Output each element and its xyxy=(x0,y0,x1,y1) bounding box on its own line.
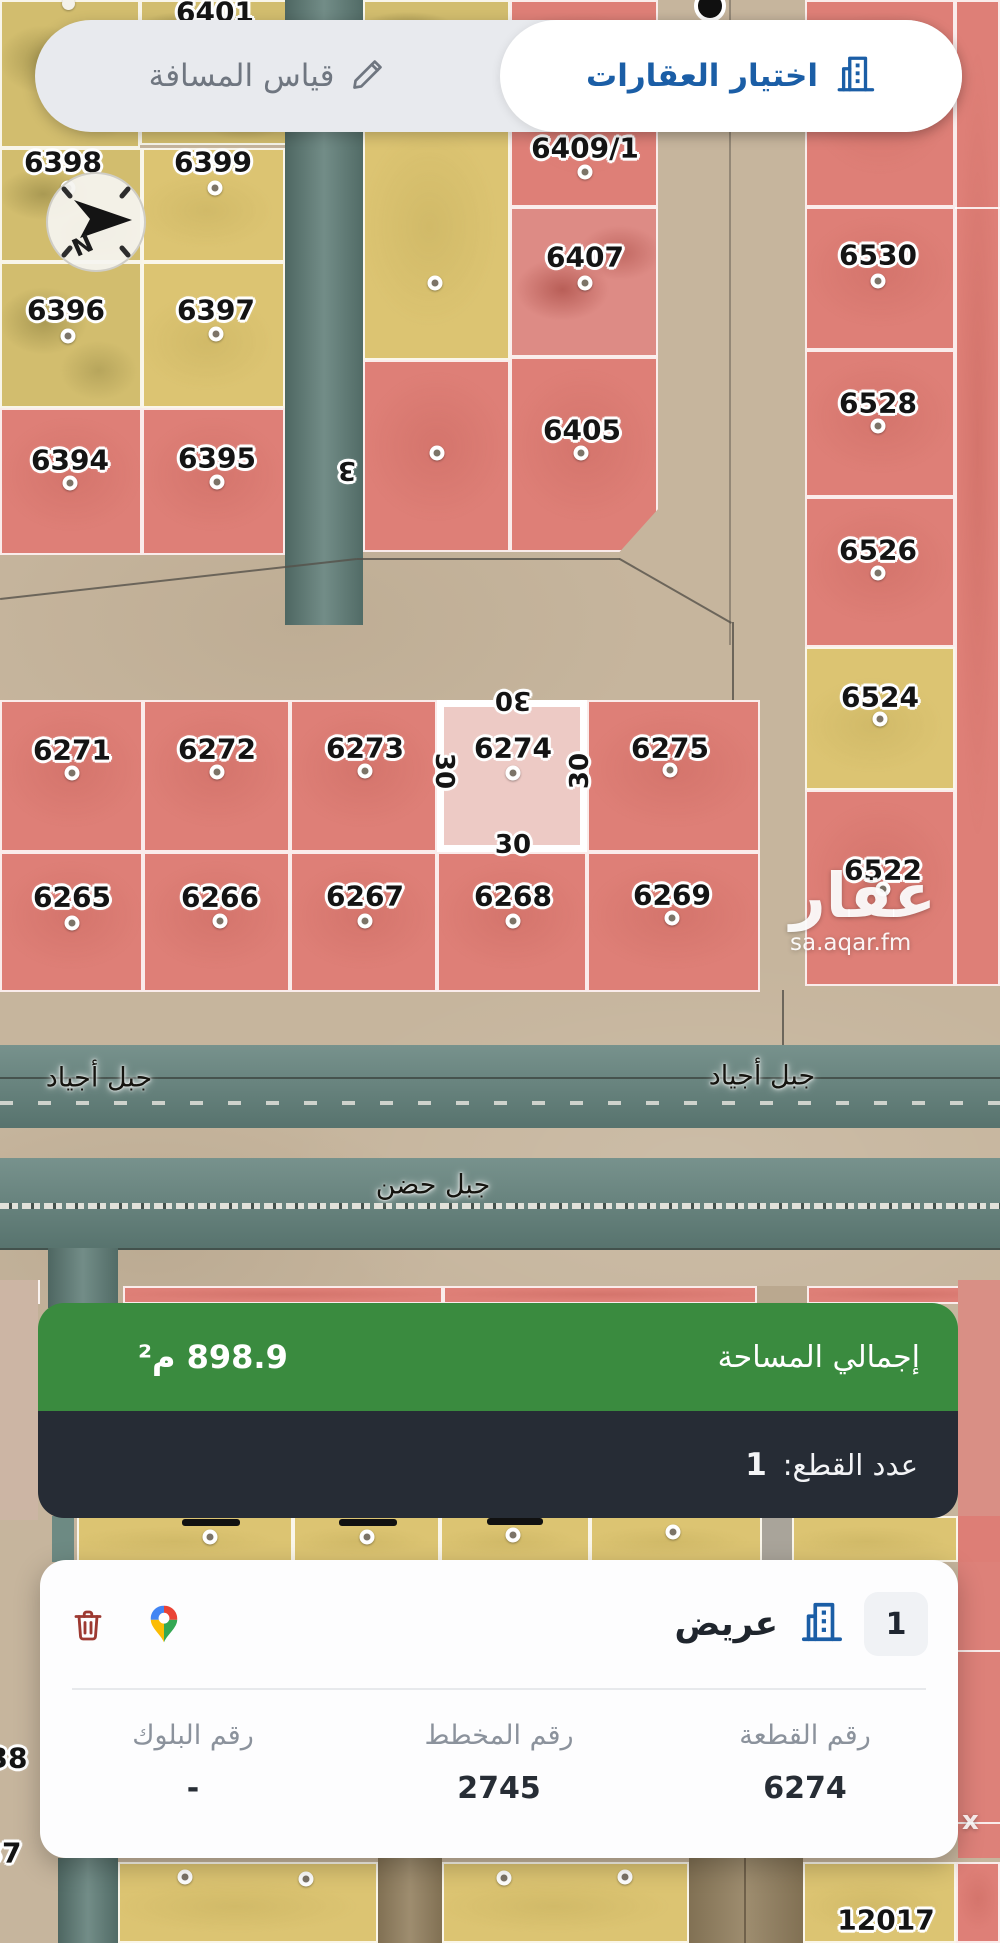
parcel-label: 6267 xyxy=(326,880,404,913)
lane-dashes xyxy=(0,1203,1000,1209)
total-area-bar: إجمالي المساحة 898.9 م² xyxy=(38,1303,958,1411)
parcel-label: 6528 xyxy=(839,387,917,420)
boundary-line xyxy=(955,207,1000,209)
parcel-dot xyxy=(178,1870,193,1885)
field-label: رقم البلوك xyxy=(40,1720,346,1751)
parcel-label: 6396 xyxy=(27,294,105,327)
watermark-domain: sa.aqar.fm xyxy=(790,930,990,956)
parcel-dot xyxy=(428,276,443,291)
parcel-label: 12017 xyxy=(837,1904,934,1937)
parcel-dot xyxy=(873,712,888,727)
parcel-dot xyxy=(358,764,373,779)
road-sliver xyxy=(762,1516,792,1562)
open-google-maps-button[interactable] xyxy=(144,1604,184,1644)
parcel-column[interactable] xyxy=(955,0,1000,986)
road-sliver xyxy=(52,1516,74,1562)
select-properties-label: اختيار العقارات xyxy=(586,58,818,94)
watermark: عقار sa.aqar.fm xyxy=(790,868,990,956)
parcel[interactable] xyxy=(118,1862,378,1943)
building-icon xyxy=(834,53,876,99)
parcel-dot xyxy=(497,1871,512,1886)
selected-parcel-label: 6274 xyxy=(474,732,552,765)
mode-toolbar: قياس المسافة اختيار العقارات xyxy=(35,20,962,132)
street-label: جبل أجياد xyxy=(709,1061,815,1092)
parcel-dot xyxy=(578,165,593,180)
road-line xyxy=(0,1248,1000,1250)
map-screen: 6401 6398 6399 6396 6397 6394 6395 6409/… xyxy=(0,0,1000,1943)
parcel-dot xyxy=(209,327,224,342)
parcel-dot xyxy=(666,1525,681,1540)
vertical-road xyxy=(58,1858,118,1943)
parcel-label: 6395 xyxy=(178,442,256,475)
parcel-label: 6530 xyxy=(839,239,917,272)
parcel-dot xyxy=(871,274,886,289)
total-area-value: 898.9 م² xyxy=(138,1338,288,1376)
parcel-label: 6405 xyxy=(543,414,621,447)
parcel-label: 6526 xyxy=(839,534,917,567)
delete-selection-button[interactable] xyxy=(70,1606,106,1642)
parcel-dot xyxy=(360,1530,375,1545)
watermark-partial: x xyxy=(962,1806,979,1836)
parcel-label: 6272 xyxy=(178,733,256,766)
measure-distance-tab[interactable]: قياس المسافة xyxy=(35,20,500,132)
parcel-label: 6524 xyxy=(841,681,919,714)
parcel-dot xyxy=(213,914,228,929)
parcel-dot xyxy=(871,566,886,581)
cut-parcel-label xyxy=(339,1519,397,1526)
parcel-label: 6409/1 xyxy=(531,132,639,165)
parcel-dot xyxy=(210,765,225,780)
parcel-dot xyxy=(506,1528,521,1543)
parcel-dot xyxy=(61,329,76,344)
field-value: - xyxy=(40,1771,346,1806)
cut-parcel-label: 38 xyxy=(0,1742,27,1775)
field-label: رقم المخطط xyxy=(346,1720,652,1751)
field-value: 6274 xyxy=(652,1771,958,1806)
total-area-label: إجمالي المساحة xyxy=(718,1340,920,1375)
parcel-label: 6394 xyxy=(31,444,109,477)
parcel-dot xyxy=(618,1870,633,1885)
road-line xyxy=(744,1858,746,1943)
boundary-line xyxy=(619,558,732,624)
parcel-label: 6269 xyxy=(633,879,711,912)
vertical-road xyxy=(48,1248,118,1308)
boundary-line xyxy=(958,1650,1000,1652)
parcel-label: 6271 xyxy=(33,734,111,767)
parcel-dot xyxy=(203,1530,218,1545)
parcel-dot xyxy=(65,766,80,781)
dirt-road xyxy=(689,1858,803,1943)
pencil-icon xyxy=(350,56,386,96)
parcel-count-label: عدد القطع: xyxy=(783,1448,918,1482)
dimension-label-top: 30 xyxy=(495,685,531,715)
parcel-count-value: 1 xyxy=(745,1447,767,1483)
parcel-dot xyxy=(506,914,521,929)
parcel-dot xyxy=(430,446,445,461)
card-fields-row: رقم القطعة 6274 رقم المخطط 2745 رقم البل… xyxy=(40,1690,958,1806)
parcel[interactable] xyxy=(443,1286,757,1304)
boundary-line xyxy=(357,558,620,560)
parcel-count-bar: عدد القطع: 1 xyxy=(38,1411,958,1518)
dimension-label-bottom: 30 xyxy=(495,830,531,860)
district-name: عريض xyxy=(674,1604,778,1644)
dimension-label-left: 30 xyxy=(429,753,459,789)
parcel-dot xyxy=(208,181,223,196)
cut-parcel-marker xyxy=(694,0,726,22)
watermark-logo: عقار xyxy=(790,868,990,924)
parcel[interactable] xyxy=(590,1516,762,1562)
parcel-details-card: 1 عريض xyxy=(40,1560,958,1858)
parcel-dot xyxy=(65,916,80,931)
parcel-label: 6397 xyxy=(177,294,255,327)
parcel-sliver xyxy=(958,1516,1000,1562)
parcel-label: 6265 xyxy=(33,881,111,914)
parcel[interactable] xyxy=(442,1862,689,1943)
building-icon xyxy=(798,1599,844,1649)
parcel-label: 6268 xyxy=(474,880,552,913)
field-value: 2745 xyxy=(346,1771,652,1806)
street-label: جبل حضن xyxy=(376,1170,491,1201)
parcel-label: 6275 xyxy=(631,732,709,765)
parcel-dot xyxy=(574,446,589,461)
cut-parcel-label: 37 xyxy=(0,1837,21,1870)
parcel[interactable] xyxy=(123,1286,443,1304)
parcel-dot xyxy=(358,914,373,929)
road-gap xyxy=(757,1286,807,1304)
dirt-road xyxy=(378,1858,442,1943)
lane-dashes xyxy=(0,1101,1000,1105)
parcel-label: 6407 xyxy=(546,241,624,274)
parcel-dot xyxy=(578,276,593,291)
parcel-12017[interactable] xyxy=(956,1862,1000,1943)
parcel-label: 6266 xyxy=(181,881,259,914)
parcel-dot xyxy=(63,476,78,491)
parcel-dot xyxy=(210,475,225,490)
field-block-number: رقم البلوك - xyxy=(40,1720,346,1806)
map-edge xyxy=(0,1280,38,1520)
parcel[interactable] xyxy=(792,1516,958,1562)
cut-parcel-label xyxy=(487,1518,543,1525)
selection-index-badge: 1 xyxy=(864,1592,928,1656)
measure-distance-label: قياس المسافة xyxy=(149,58,335,94)
field-parcel-number: رقم القطعة 6274 xyxy=(652,1720,958,1806)
field-plan-number: رقم المخطط 2745 xyxy=(346,1720,652,1806)
compass-control[interactable]: N xyxy=(40,168,152,280)
field-label: رقم القطعة xyxy=(652,1720,958,1751)
dimension-label-right: 30 xyxy=(565,753,595,789)
parcel-label: 6399 xyxy=(174,146,252,179)
parcel-dot xyxy=(871,419,886,434)
map-edge xyxy=(958,1280,1000,1518)
cut-parcel-label xyxy=(182,1519,240,1526)
select-properties-tab[interactable]: اختيار العقارات xyxy=(500,20,962,132)
parcel-dot xyxy=(299,1872,314,1887)
parcel-dot xyxy=(506,766,521,781)
road-width-marker: 3 xyxy=(338,455,356,485)
parcel-dot xyxy=(663,763,678,778)
card-header-row: 1 عريض xyxy=(40,1560,958,1688)
parcel-dot xyxy=(665,911,680,926)
boundary-line xyxy=(732,622,734,700)
parcel-label: 6273 xyxy=(326,732,404,765)
street-label: جبل أجياد xyxy=(46,1063,152,1094)
